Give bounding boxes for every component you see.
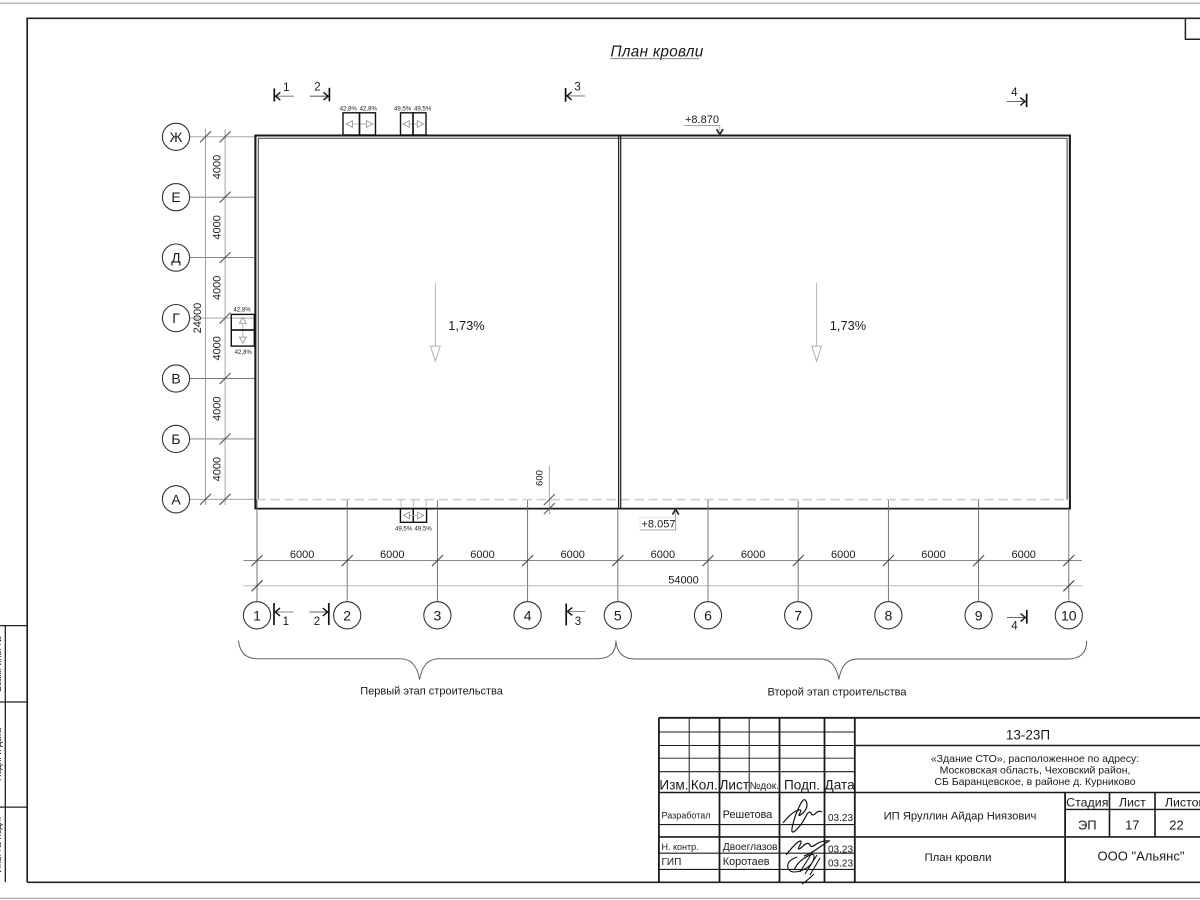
svg-text:ООО "Альянс": ООО "Альянс"	[1098, 848, 1185, 863]
svg-text:Г: Г	[172, 310, 180, 326]
svg-text:ГИП: ГИП	[662, 857, 682, 868]
svg-text:+8.870: +8.870	[685, 114, 719, 126]
svg-text:Б: Б	[171, 431, 180, 447]
svg-text:4000: 4000	[211, 155, 223, 179]
svg-text:4000: 4000	[211, 396, 223, 420]
svg-text:6000: 6000	[380, 549, 404, 561]
svg-text:Изм.: Изм.	[659, 778, 688, 793]
svg-text:Н. контр.: Н. контр.	[662, 842, 699, 852]
svg-text:42,8%: 42,8%	[360, 106, 378, 113]
svg-text:Листов: Листов	[1165, 796, 1200, 810]
svg-text:2: 2	[314, 616, 320, 628]
svg-text:4000: 4000	[211, 457, 223, 481]
svg-text:Кол.: Кол.	[691, 778, 718, 793]
svg-text:Е: Е	[171, 189, 180, 205]
svg-text:13-23П: 13-23П	[1006, 728, 1050, 743]
svg-text:План кровли: План кровли	[611, 44, 704, 61]
svg-text:1,73%: 1,73%	[830, 318, 866, 333]
svg-text:03.23: 03.23	[828, 859, 853, 870]
svg-text:Решетова: Решетова	[723, 809, 773, 821]
svg-text:4000: 4000	[211, 276, 223, 300]
svg-text:План кровли: План кровли	[924, 852, 991, 864]
svg-text:1: 1	[283, 616, 289, 628]
svg-text:Первый этап строительства: Первый этап строительства	[360, 686, 504, 698]
svg-text:«Здание СТО», расположенное по: «Здание СТО», расположенное по адресу:	[931, 753, 1139, 765]
svg-text:6000: 6000	[831, 549, 855, 561]
svg-text:ЭП: ЭП	[1078, 818, 1097, 833]
svg-text:Взам. инв. №: Взам. инв. №	[0, 636, 3, 692]
svg-text:6: 6	[704, 607, 712, 623]
svg-text:Коротаев: Коротаев	[723, 856, 770, 868]
svg-text:3: 3	[434, 607, 442, 623]
svg-text:8: 8	[885, 607, 893, 623]
svg-text:1: 1	[283, 82, 289, 94]
svg-text:03.23: 03.23	[828, 845, 853, 856]
svg-text:6000: 6000	[921, 549, 945, 561]
svg-text:600: 600	[534, 470, 545, 486]
svg-text:6000: 6000	[560, 549, 584, 561]
svg-text:№док.: №док.	[750, 781, 779, 792]
svg-text:Лист: Лист	[1119, 796, 1146, 810]
svg-text:6000: 6000	[290, 549, 314, 561]
svg-text:4: 4	[1011, 87, 1018, 99]
svg-text:2: 2	[343, 607, 351, 623]
svg-text:Второй этап строительства: Второй этап строительства	[768, 687, 908, 699]
svg-text:А: А	[171, 491, 181, 507]
svg-text:42,8%: 42,8%	[235, 349, 253, 356]
svg-text:10: 10	[1061, 607, 1077, 623]
svg-text:17: 17	[1125, 818, 1139, 833]
svg-text:Стадия: Стадия	[1066, 796, 1108, 810]
svg-text:42,8%: 42,8%	[233, 306, 251, 313]
svg-text:6000: 6000	[651, 549, 675, 561]
svg-text:3: 3	[575, 616, 581, 628]
svg-text:9: 9	[975, 607, 983, 623]
svg-text:49,5%: 49,5%	[395, 526, 413, 533]
svg-text:Подп.: Подп.	[784, 778, 820, 793]
svg-text:4000: 4000	[211, 215, 223, 239]
svg-text:6000: 6000	[741, 549, 765, 561]
svg-text:24000: 24000	[192, 303, 204, 334]
svg-text:1: 1	[253, 607, 261, 623]
svg-text:Московская область, Чеховский: Московская область, Чеховский район,	[940, 765, 1131, 777]
svg-text:Дата: Дата	[825, 778, 856, 793]
svg-text:Подп. и дата: Подп. и дата	[0, 728, 3, 781]
svg-text:6000: 6000	[1011, 549, 1035, 561]
svg-text:В: В	[171, 371, 180, 387]
svg-text:Разработал: Разработал	[662, 810, 711, 820]
svg-text:03.23: 03.23	[828, 813, 853, 824]
svg-text:1,73%: 1,73%	[448, 318, 484, 333]
svg-text:49,5%: 49,5%	[415, 526, 433, 533]
svg-text:Лист: Лист	[720, 778, 750, 793]
svg-text:+8.057: +8.057	[642, 519, 676, 531]
svg-text:6000: 6000	[470, 549, 494, 561]
svg-text:Ж: Ж	[170, 129, 183, 145]
svg-text:54000: 54000	[668, 574, 699, 586]
svg-text:Инв. № подл.: Инв. № подл.	[0, 817, 3, 873]
svg-text:Д: Д	[171, 250, 181, 266]
svg-text:42,8%: 42,8%	[340, 106, 358, 113]
svg-text:СБ Баранцевское, в районе д. К: СБ Баранцевское, в районе д. Курниково	[934, 776, 1135, 788]
svg-text:4000: 4000	[211, 336, 223, 360]
svg-text:22: 22	[1169, 818, 1183, 833]
svg-text:2: 2	[314, 82, 320, 94]
svg-text:ИП Яруллин Айдар Ниязович: ИП Яруллин Айдар Ниязович	[884, 811, 1037, 823]
svg-text:Двоеглазов: Двоеглазов	[723, 842, 778, 853]
svg-text:49,5%: 49,5%	[394, 106, 412, 113]
svg-text:49,5%: 49,5%	[414, 106, 432, 113]
svg-text:3: 3	[574, 82, 580, 94]
svg-text:4: 4	[1011, 620, 1018, 632]
svg-text:7: 7	[794, 607, 802, 623]
svg-text:4: 4	[524, 607, 532, 623]
svg-text:5: 5	[614, 607, 622, 623]
